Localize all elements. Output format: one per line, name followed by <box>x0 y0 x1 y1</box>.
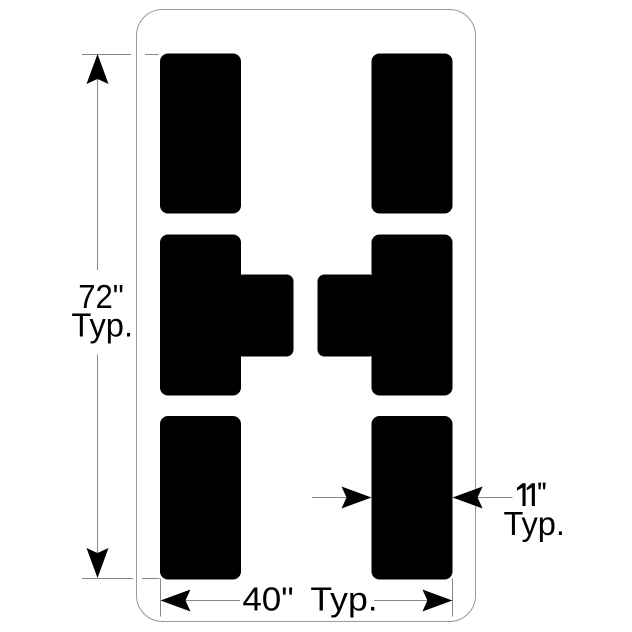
svg-text:40": 40" <box>242 581 293 618</box>
svg-text:Typ.: Typ. <box>310 581 377 618</box>
svg-text:Typ.: Typ. <box>71 306 133 343</box>
svg-text:Typ.: Typ. <box>503 505 565 542</box>
